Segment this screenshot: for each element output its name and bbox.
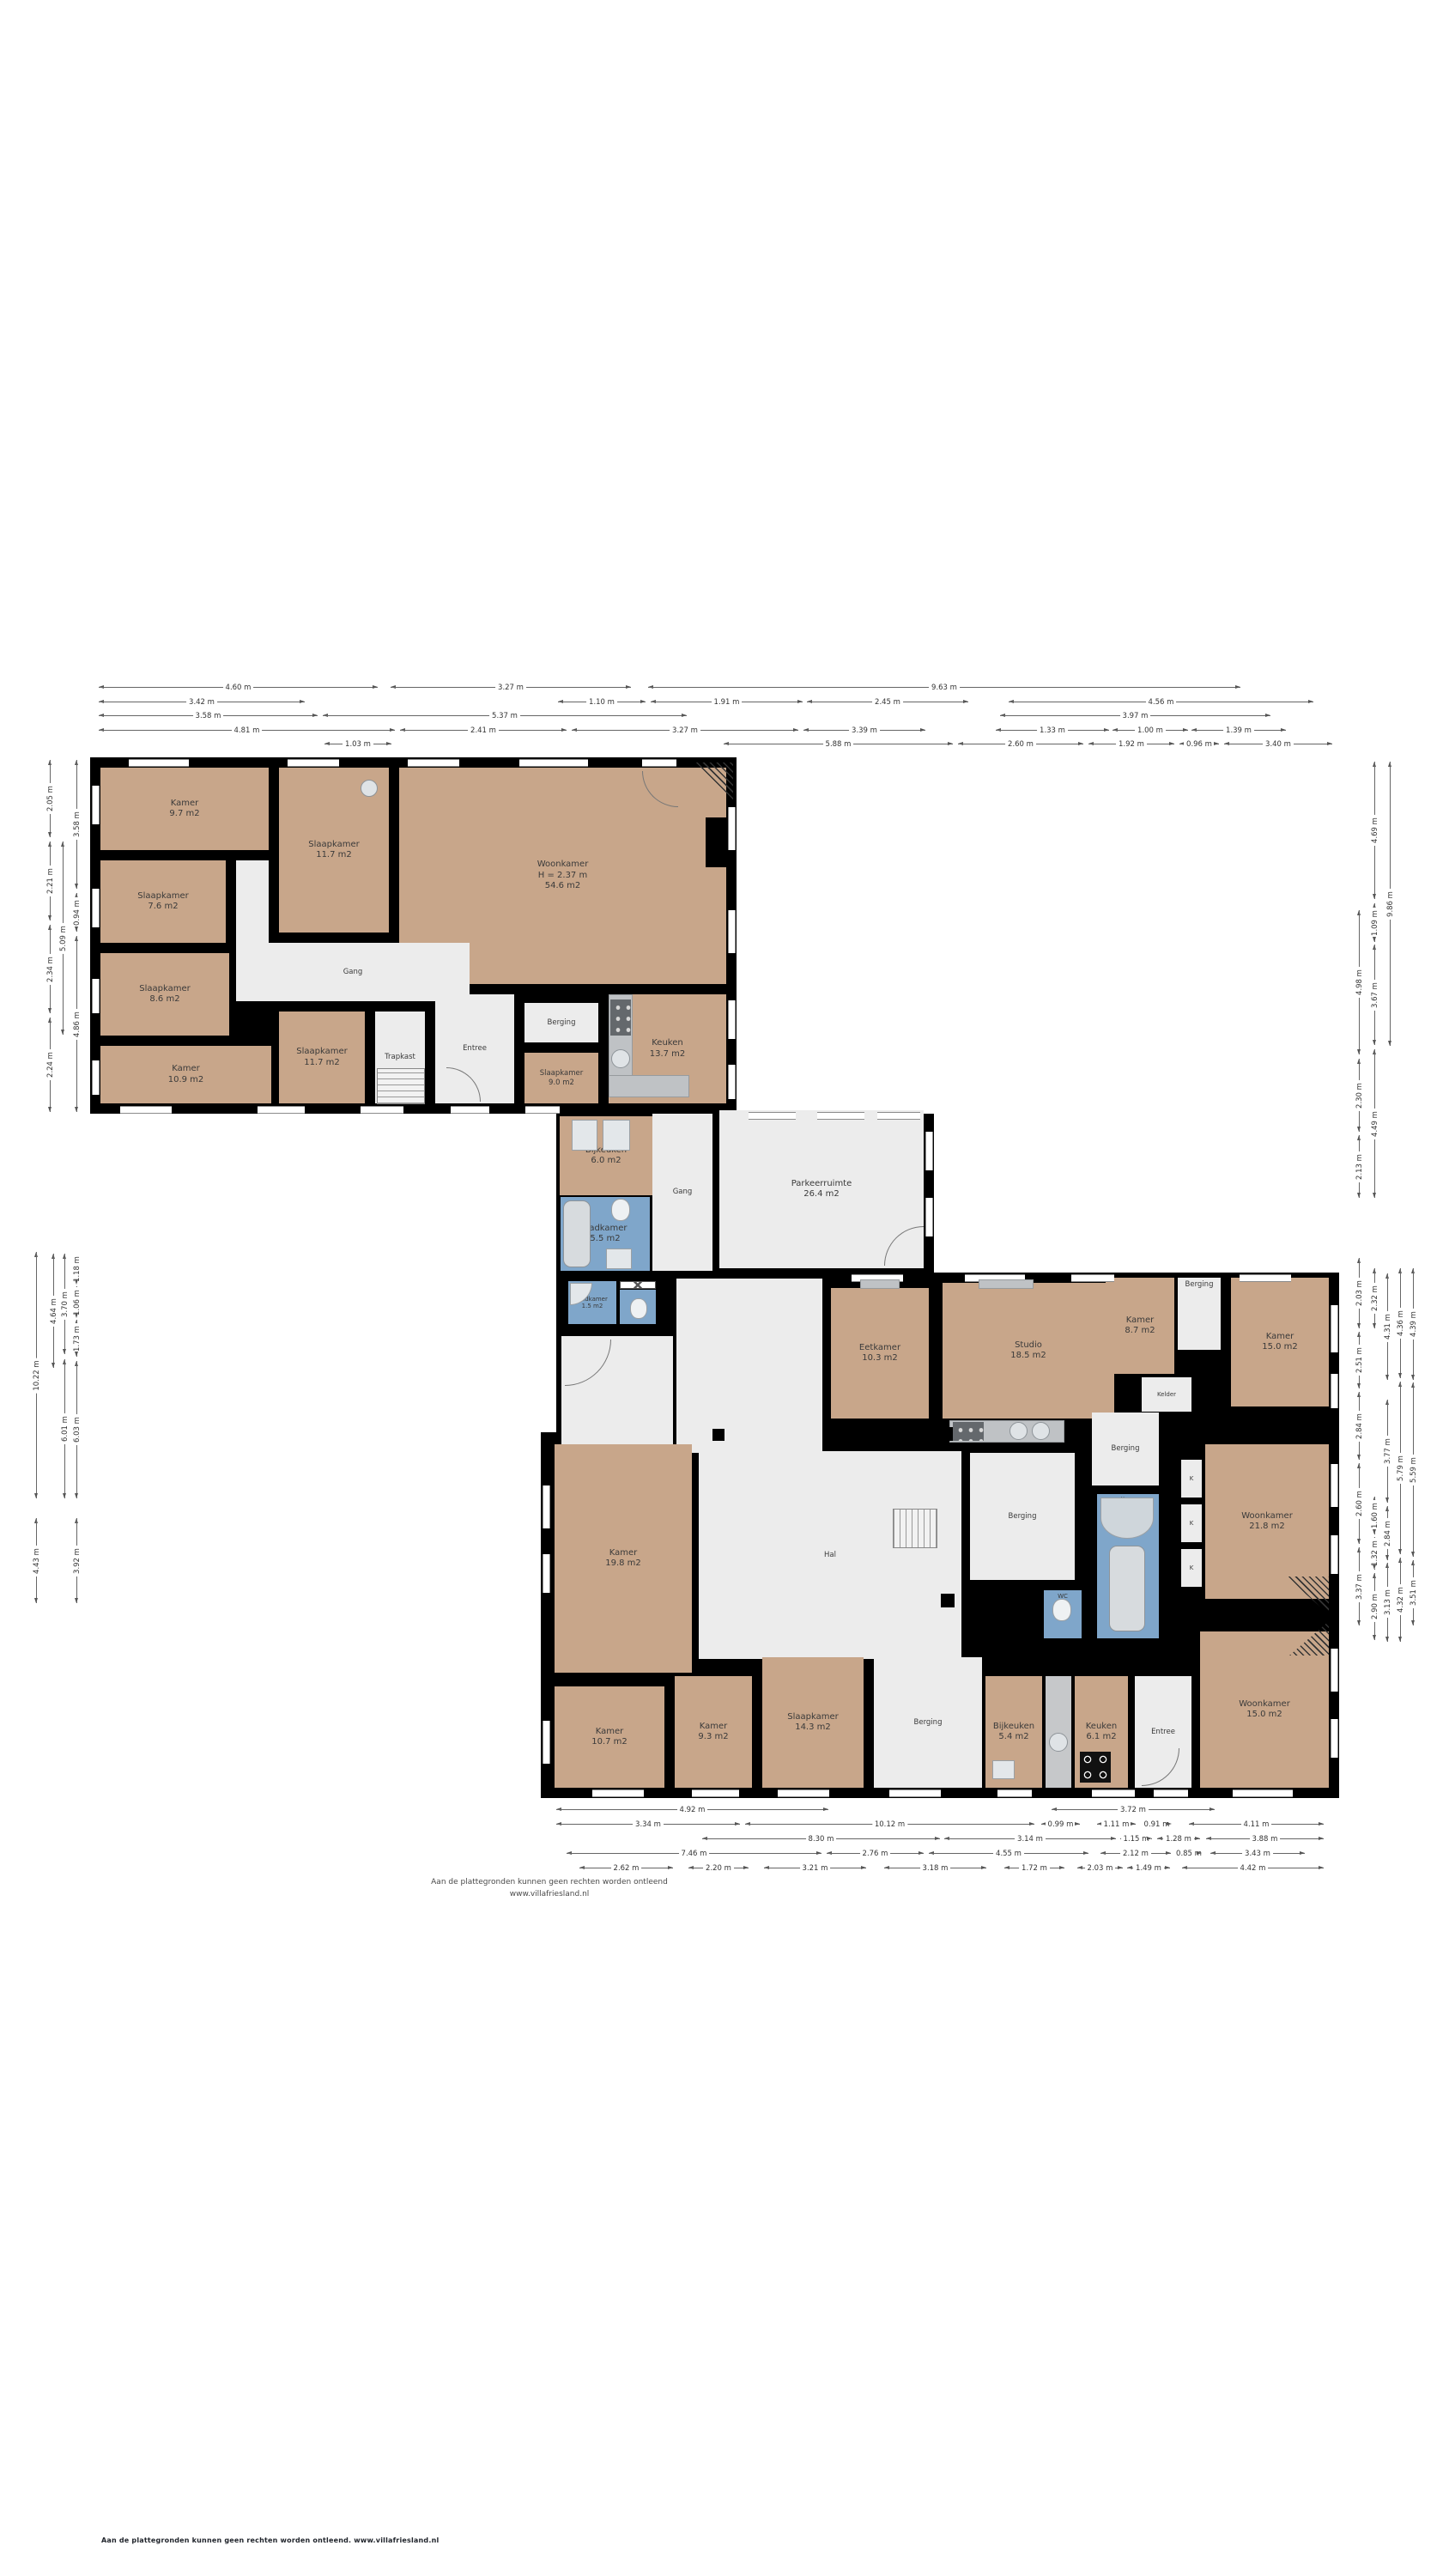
dimension: 3.40 m (1224, 739, 1332, 749)
dimension: 8.30 m (702, 1834, 940, 1844)
dimension: 4.92 m (556, 1805, 828, 1814)
window (92, 889, 100, 927)
dimension-label: 3.97 m (1120, 712, 1151, 720)
room-kamer107: Kamer10.7 m2 (555, 1686, 664, 1788)
dimension: 6.01 m (60, 1359, 70, 1498)
dimension: 1.39 m (1191, 726, 1286, 735)
dimension: 3.72 m (1052, 1805, 1215, 1814)
room-bergingNarrow: Berging (1092, 1413, 1159, 1485)
dimension-label: 2.62 m (611, 1864, 642, 1873)
dimension-label: 2.24 m (46, 1049, 55, 1080)
dimension-label: 3.27 m (495, 683, 526, 692)
room-k2: K (1181, 1504, 1202, 1542)
page-footer-text: Aan de plattegronden kunnen geen rechten… (101, 2537, 439, 2544)
room-label: K (1190, 1475, 1194, 1482)
room-label: Entree (1151, 1728, 1175, 1737)
window (258, 1106, 305, 1114)
disclaimer-url: www.villafriesland.nl (292, 1889, 807, 1901)
room-k1: K (1181, 1460, 1202, 1498)
room-label: Eetkamer10.3 m2 (859, 1343, 900, 1364)
dimension-label: 3.77 m (1384, 1436, 1392, 1467)
room-label: K (1190, 1564, 1194, 1571)
dimension-label: 4.69 m (1371, 815, 1379, 846)
dimension: 3.42 m (99, 697, 305, 707)
window (749, 1112, 796, 1120)
window (1331, 1719, 1338, 1758)
room-label: Studio18.5 m2 (1010, 1340, 1046, 1362)
dimension: 3.14 m (944, 1834, 1116, 1844)
dimension-label: 2.60 m (1005, 740, 1036, 749)
window (1233, 1789, 1293, 1797)
dimension: 4.31 m (1383, 1273, 1392, 1380)
dimension-label: 1.06 m (73, 1287, 82, 1318)
dimension-label: 2.30 m (1355, 1080, 1364, 1111)
dimension: 3.43 m (1210, 1849, 1305, 1858)
dimension-label: 4.81 m (232, 726, 263, 735)
room-label: Trapkast (385, 1053, 415, 1062)
appliance-icon (992, 1760, 1015, 1779)
room-kelder: Kelder (1142, 1377, 1191, 1412)
dimension-label: 4.42 m (1238, 1864, 1269, 1873)
room-label: Slaapkamer14.3 m2 (787, 1712, 838, 1734)
room-slaapkamer90: Slaapkamer9.0 m2 (524, 1053, 598, 1103)
window (451, 1106, 489, 1114)
stairs-icon (893, 1509, 937, 1548)
dimension-label: 1.39 m (1223, 726, 1254, 735)
vent-strip (979, 1279, 1034, 1289)
room-label: Kamer10.9 m2 (168, 1064, 204, 1085)
dimension: 4.43 m (32, 1518, 41, 1603)
dimension: 2.24 m (45, 1018, 55, 1112)
dimension-label: 0.96 m (1184, 740, 1215, 749)
dimension: 2.20 m (688, 1863, 749, 1873)
dimension-label: 1.00 m (1135, 726, 1166, 735)
dimension-label: 5.59 m (1410, 1455, 1418, 1485)
room-label: Keuken6.1 m2 (1086, 1722, 1117, 1743)
fireplace-block (706, 817, 726, 867)
dimension: 3.58 m (99, 711, 318, 720)
dimension: 2.41 m (400, 726, 567, 735)
room-label: Berging (1009, 1512, 1037, 1522)
dimension: 0.91 m (1142, 1820, 1172, 1829)
room-label: Gang (343, 968, 363, 977)
window (288, 759, 339, 767)
dimension-label: 1.15 m (1121, 1835, 1152, 1844)
room-label: Gang (673, 1188, 693, 1197)
dimension: 1.72 m (1004, 1863, 1064, 1873)
window (728, 807, 736, 850)
room-kamer198: Kamer19.8 m2 (555, 1444, 692, 1673)
dimension: 1.03 m (324, 739, 391, 749)
dimension: 2.62 m (579, 1863, 673, 1873)
room-label: K (1190, 1520, 1194, 1527)
dimension-label: 4.11 m (1241, 1820, 1272, 1829)
dimension: 1.11 m (1097, 1820, 1136, 1829)
dimension: 3.58 m (72, 760, 82, 889)
dimension-label: 4.64 m (50, 1296, 58, 1327)
dimension: 4.32 m (1396, 1558, 1405, 1642)
room-label: Kamer19.8 m2 (605, 1548, 641, 1570)
toilet-icon (630, 1298, 647, 1319)
dimension-label: 2.21 m (46, 866, 55, 896)
dimension: 2.13 m (1355, 1135, 1364, 1198)
appliance-icon (572, 1120, 597, 1151)
dimension: 0.85 m (1176, 1849, 1202, 1858)
dimension: 2.30 m (1355, 1059, 1364, 1132)
dimension-label: 1.72 m (1019, 1864, 1050, 1873)
dimension-label: 3.58 m (193, 712, 224, 720)
dimension: 3.37 m (1355, 1547, 1364, 1625)
room-kamer97: Kamer9.7 m2 (100, 768, 269, 850)
dimension-label: 0.94 m (73, 897, 82, 928)
room-gang1: Gang (236, 943, 470, 1001)
dimension-label: 2.03 m (1355, 1278, 1364, 1309)
window (925, 1198, 933, 1236)
window (889, 1789, 941, 1797)
dimension-label: 2.84 m (1384, 1518, 1392, 1549)
room-label: Berging (548, 1018, 576, 1028)
dimension: 4.36 m (1396, 1268, 1405, 1378)
room-slaapkamer86: Slaapkamer8.6 m2 (100, 953, 229, 1036)
dimension-label: 4.86 m (73, 1009, 82, 1040)
dimension: 3.88 m (1206, 1834, 1324, 1844)
dimension: 1.73 m (72, 1320, 82, 1357)
dimension: 1.00 m (1113, 726, 1188, 735)
dimension: 1.91 m (651, 697, 803, 707)
dimension: 6.03 m (72, 1361, 82, 1498)
room-label: Parkeerruimte26.4 m2 (791, 1179, 852, 1200)
dimension-label: 4.31 m (1384, 1311, 1392, 1342)
dimension-label: 1.11 m (1101, 1820, 1132, 1829)
sink-icon (361, 780, 378, 797)
dimension-label: 0.99 m (1046, 1820, 1076, 1829)
window (642, 759, 676, 767)
dimension-label: 1.28 m (1163, 1835, 1194, 1844)
room-berging1: Berging (524, 1003, 598, 1042)
room-label: Bijkeuken5.4 m2 (993, 1722, 1034, 1743)
room-slaapkamer76: Slaapkamer7.6 m2 (100, 860, 226, 943)
pillar (939, 1427, 953, 1441)
dimension-label: 2.03 m (1085, 1864, 1116, 1873)
dimension-label: 1.03 m (343, 740, 373, 749)
window (120, 1106, 172, 1114)
toilet-icon (1052, 1599, 1071, 1621)
stove-icon (953, 1422, 984, 1441)
dimension: 4.98 m (1355, 910, 1364, 1054)
dimension-label: 10.12 m (872, 1820, 907, 1829)
dimension: 3.18 m (884, 1863, 986, 1873)
dimension-label: 2.60 m (1355, 1488, 1364, 1519)
window (543, 1554, 550, 1593)
room-label: Kelder (1157, 1391, 1176, 1398)
dimension: 1.18 m (72, 1254, 82, 1285)
dimension: 2.05 m (45, 760, 55, 837)
dimension: 2.84 m (1355, 1392, 1364, 1460)
dimension: 3.70 m (60, 1254, 70, 1354)
dimension: 5.59 m (1409, 1382, 1418, 1557)
room-label: Kamer15.0 m2 (1262, 1332, 1298, 1353)
room-kamer93: Kamer9.3 m2 (675, 1676, 752, 1788)
dimension: 1.92 m (1088, 739, 1174, 749)
dimension-label: 2.41 m (468, 726, 499, 735)
dimension: 4.64 m (49, 1254, 58, 1368)
dimension-label: 1.10 m (586, 698, 617, 707)
room-hal: Hal (699, 1451, 961, 1659)
room-label: Slaapkamer11.7 m2 (308, 840, 359, 861)
window (1331, 1649, 1338, 1692)
dimension-label: 1.60 m (1371, 1500, 1379, 1531)
dimension-label: 4.43 m (33, 1546, 41, 1577)
dimension: 2.03 m (1355, 1258, 1364, 1328)
dimension-label: 8.30 m (806, 1835, 837, 1844)
room-label: Keuken13.7 m2 (650, 1038, 686, 1060)
window (92, 1060, 100, 1095)
room-kamer87: Kamer8.7 m2 (1106, 1278, 1174, 1374)
window (877, 1112, 920, 1120)
dimension: 0.94 m (72, 893, 82, 932)
window (408, 759, 459, 767)
dimension: 4.11 m (1189, 1820, 1324, 1829)
dimension-label: 2.12 m (1120, 1850, 1151, 1858)
window (925, 1132, 933, 1170)
dimension: 2.76 m (827, 1849, 924, 1858)
room-label: Berging (914, 1718, 943, 1728)
dimension-label: 1.18 m (73, 1254, 82, 1285)
dimension-label: 6.01 m (61, 1413, 70, 1444)
dimension-label: 5.79 m (1397, 1453, 1405, 1484)
dimension: 4.39 m (1409, 1268, 1418, 1380)
room-label: Berging (1112, 1444, 1140, 1454)
room-label: Woonkamer15.0 m2 (1239, 1699, 1290, 1721)
dimension-label: 7.46 m (679, 1850, 710, 1858)
room-label: Kamer9.7 m2 (169, 799, 199, 820)
pillar (712, 1429, 724, 1441)
room-slaapkamer117b: Slaapkamer11.7 m2 (279, 1012, 365, 1103)
window (997, 1789, 1032, 1797)
window (129, 759, 189, 767)
window (728, 1065, 736, 1099)
dimension: 2.45 m (807, 697, 968, 707)
room-studio: Studio18.5 m2 (943, 1283, 1114, 1419)
dimension-label: 0.85 m (1173, 1850, 1204, 1858)
dimension-label: 3.18 m (920, 1864, 951, 1873)
room-bergingTop: Berging (1178, 1278, 1221, 1350)
dimension-label: 3.21 m (800, 1864, 831, 1873)
dimension: 4.86 m (72, 936, 82, 1112)
dimension-label: 4.60 m (223, 683, 254, 692)
dimension: 10.12 m (745, 1820, 1034, 1829)
dimension: 3.67 m (1370, 945, 1379, 1045)
sink-icon (611, 1049, 630, 1068)
dimension-label: 5.37 m (489, 712, 520, 720)
shower-icon (1100, 1498, 1154, 1539)
dimension: 2.34 m (45, 925, 55, 1013)
room-bergingBot: Berging (874, 1657, 982, 1788)
dimension-label: 2.84 m (1355, 1411, 1364, 1442)
corridor-floor (1046, 1676, 1071, 1788)
window (1331, 1305, 1338, 1352)
window (1092, 1789, 1135, 1797)
dimension: 9.86 m (1385, 762, 1395, 1046)
dimension-label: 1.33 m (1037, 726, 1068, 735)
room-label: Berging (1185, 1280, 1214, 1290)
dimension: 5.37 m (323, 711, 687, 720)
dimension: 2.21 m (45, 841, 55, 920)
dimension-label: 2.76 m (860, 1850, 891, 1858)
window (592, 1789, 644, 1797)
dimension-label: 2.05 m (46, 783, 55, 814)
dimension-label: 3.70 m (61, 1289, 70, 1320)
dimension-label: 1.09 m (1371, 908, 1379, 939)
dimension: 2.60 m (1355, 1463, 1364, 1544)
dimension: 3.13 m (1383, 1563, 1392, 1642)
hall-floor-upper (676, 1279, 822, 1453)
window (525, 1106, 560, 1114)
room-label: Hal (824, 1551, 836, 1560)
dimension: 3.27 m (391, 683, 631, 692)
dimension-label: 3.88 m (1250, 1835, 1281, 1844)
appliance-icon (603, 1120, 630, 1151)
dimension-label: 2.20 m (703, 1864, 734, 1873)
bathtub-icon (563, 1200, 591, 1267)
dimension-label: 4.39 m (1410, 1309, 1418, 1340)
dimension: 0.96 m (1179, 739, 1219, 749)
dimension-label: 9.86 m (1386, 889, 1395, 920)
dimension-label: 4.92 m (677, 1806, 708, 1814)
dimension: 2.90 m (1370, 1573, 1379, 1640)
room-gang2: Gang (652, 1114, 712, 1271)
dimension-label: 0.91 m (1142, 1820, 1173, 1829)
window (778, 1789, 829, 1797)
room-slaapkamer143: Slaapkamer14.3 m2 (762, 1657, 864, 1788)
dimension: 1.49 m (1127, 1863, 1170, 1873)
dimension-label: 1.32 m (1371, 1538, 1379, 1569)
dimension: 3.27 m (572, 726, 798, 735)
room-label: Slaapkamer11.7 m2 (296, 1047, 347, 1068)
room-label: Slaapkamer7.6 m2 (137, 891, 188, 913)
room-label: WoonkamerH = 2.37 m54.6 m2 (537, 860, 589, 892)
window (1071, 1274, 1114, 1282)
window (519, 759, 588, 767)
washbasin-icon (606, 1249, 632, 1269)
room-kamer150: Kamer15.0 m2 (1231, 1278, 1329, 1406)
dimension: 3.51 m (1409, 1560, 1418, 1625)
dimension: 1.15 m (1120, 1834, 1152, 1844)
dimension-label: 10.22 m (33, 1358, 41, 1393)
dimension: 4.56 m (1009, 697, 1313, 707)
dimension: 4.55 m (929, 1849, 1088, 1858)
dimension: 2.84 m (1383, 1506, 1392, 1560)
dimension-label: 1.49 m (1133, 1864, 1164, 1873)
stairs-icon (377, 1068, 425, 1104)
room-bergingBig: Berging (970, 1453, 1075, 1580)
dimension: 5.79 m (1396, 1382, 1405, 1554)
room-k3: K (1181, 1549, 1202, 1587)
dimension-label: 2.13 m (1355, 1151, 1364, 1182)
pillar (834, 1427, 846, 1439)
dimension: 0.99 m (1041, 1820, 1080, 1829)
room-label: Kamer10.7 m2 (591, 1727, 627, 1748)
dimension-label: 3.51 m (1410, 1577, 1418, 1608)
disclaimer-line: Aan de plattegronden kunnen geen rechten… (292, 1877, 807, 1889)
dimension-label: 3.43 m (1242, 1850, 1273, 1858)
stove-icon (1080, 1752, 1111, 1783)
window (361, 1106, 403, 1114)
closet-icon (620, 1281, 656, 1289)
dimension-label: 2.32 m (1371, 1283, 1379, 1314)
dimension: 1.28 m (1157, 1834, 1200, 1844)
dimension-label: 3.72 m (1118, 1806, 1149, 1814)
dimension-label: 3.27 m (670, 726, 700, 735)
bathtub-icon (1109, 1546, 1145, 1631)
window (1240, 1274, 1291, 1282)
dimension-label: 2.45 m (872, 698, 903, 707)
sink-icon (1009, 1422, 1028, 1440)
window (92, 786, 100, 824)
window (1331, 1464, 1338, 1507)
window (92, 979, 100, 1013)
dimension-label: 5.09 m (59, 923, 68, 954)
dimension: 1.60 m (1370, 1497, 1379, 1534)
room-label: Entree (463, 1044, 487, 1054)
dimension-label: 4.32 m (1397, 1584, 1405, 1615)
dimension: 3.21 m (764, 1863, 866, 1873)
sink-icon (1049, 1733, 1068, 1752)
dimension-label: 3.39 m (849, 726, 880, 735)
dimension: 1.06 m (72, 1286, 82, 1318)
window (728, 1000, 736, 1039)
kitchen-counter (609, 1075, 689, 1097)
dimension: 1.09 m (1370, 903, 1379, 942)
stove-icon (610, 999, 631, 1036)
dimension: 2.32 m (1370, 1268, 1379, 1328)
room-label: Kamer8.7 m2 (1125, 1315, 1155, 1337)
dimension-label: 2.90 m (1371, 1591, 1379, 1622)
dimension-label: 3.13 m (1384, 1587, 1392, 1618)
window (1154, 1789, 1188, 1797)
pillar (941, 1594, 955, 1607)
dimension-label: 3.34 m (633, 1820, 664, 1829)
dimension: 4.49 m (1370, 1049, 1379, 1198)
window (543, 1485, 550, 1528)
dimension-label: 4.56 m (1146, 698, 1177, 707)
room-label: Woonkamer21.8 m2 (1241, 1511, 1293, 1533)
window (728, 910, 736, 953)
room-label: Slaapkamer9.0 m2 (540, 1069, 584, 1087)
room-label: Kamer9.3 m2 (698, 1722, 728, 1743)
dimension: 2.51 m (1355, 1332, 1364, 1388)
dimension: 3.92 m (72, 1518, 82, 1603)
room-woonkamer218: Woonkamer21.8 m2 (1205, 1444, 1329, 1599)
dimension-label: 3.67 m (1371, 980, 1379, 1011)
dimension-label: 4.98 m (1355, 967, 1364, 998)
vent-strip (860, 1279, 900, 1289)
dimension-label: 1.73 m (73, 1323, 82, 1354)
dimension-label: 1.91 m (712, 698, 743, 707)
floorplan-page: Kamer9.7 m2Slaapkamer11.7 m2WoonkamerH =… (0, 0, 1449, 2576)
dimension: 2.12 m (1100, 1849, 1171, 1858)
dimension: 4.81 m (99, 726, 395, 735)
dimension-label: 3.42 m (186, 698, 217, 707)
dimension: 3.97 m (1000, 711, 1270, 720)
dimension: 4.60 m (99, 683, 378, 692)
sink-icon (1032, 1422, 1050, 1440)
window (1331, 1374, 1338, 1408)
dimension: 1.10 m (558, 697, 646, 707)
window (817, 1112, 864, 1120)
dimension: 5.09 m (58, 841, 68, 1035)
dimension: 5.88 m (724, 739, 953, 749)
